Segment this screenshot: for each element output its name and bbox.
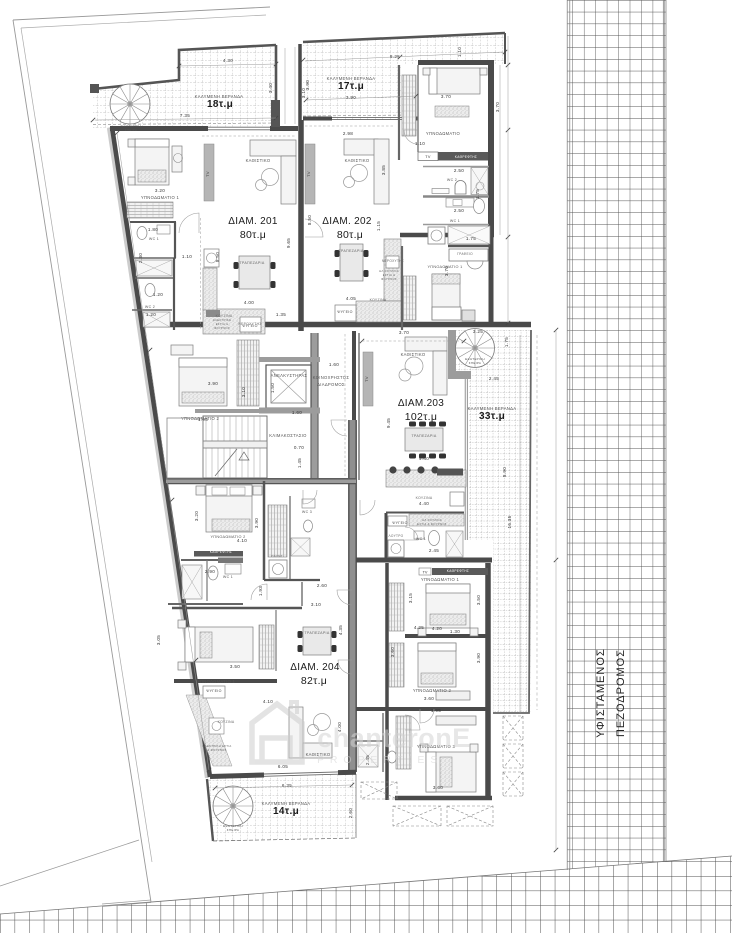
- svg-text:82τ.μ: 82τ.μ: [301, 675, 327, 687]
- svg-text:9.65: 9.65: [286, 238, 291, 248]
- svg-text:ΣΠΕΙΡΑ: ΣΠΕΙΡΑ: [125, 128, 137, 132]
- svg-text:4.25: 4.25: [414, 625, 424, 630]
- svg-text:1.30: 1.30: [450, 629, 460, 634]
- svg-text:4.30: 4.30: [223, 58, 233, 63]
- svg-text:3.20: 3.20: [155, 188, 165, 193]
- svg-text:3.90: 3.90: [208, 381, 218, 386]
- svg-text:ΥΠΝΟΔΩΜΑΤΙΟ: ΥΠΝΟΔΩΜΑΤΙΟ: [426, 131, 461, 136]
- svg-text:1.93: 1.93: [258, 586, 263, 596]
- svg-text:6.35: 6.35: [282, 783, 292, 788]
- svg-text:ΚΟΙΝΟΧΡΗΣΤΟΣ: ΚΟΙΝΟΧΡΗΣΤΟΣ: [313, 375, 350, 380]
- svg-text:ΚΑΘΙΣΤΙΚΟ: ΚΑΘΙΣΤΙΚΟ: [401, 352, 426, 357]
- svg-text:ΚΑΘΡΕΦΤΗΣ: ΚΑΘΡΕΦΤΗΣ: [447, 569, 469, 573]
- svg-text:ΚΟΥΖΙΝΑ: ΚΟΥΖΙΝΑ: [370, 298, 387, 302]
- svg-text:ΣΠΕΙΡΑ: ΣΠΕΙΡΑ: [469, 361, 481, 365]
- svg-text:1.10: 1.10: [457, 47, 462, 57]
- svg-text:1.35: 1.35: [276, 312, 286, 317]
- svg-text:ΨΥΓΕΙΟ: ΨΥΓΕΙΟ: [337, 310, 352, 314]
- svg-text:80τ.μ: 80τ.μ: [337, 229, 363, 241]
- svg-text:3.20: 3.20: [194, 511, 199, 521]
- svg-text:ΤΡΑΠΕΖΑΡΙΑ: ΤΡΑΠΕΖΑΡΙΑ: [304, 631, 329, 635]
- svg-text:1.60: 1.60: [292, 410, 302, 415]
- svg-text:ΠΕΖΟΔΡΟΜΟΣ: ΠΕΖΟΔΡΟΜΟΣ: [615, 649, 627, 737]
- svg-text:WC 3: WC 3: [302, 510, 312, 514]
- svg-text:1.10: 1.10: [182, 254, 192, 259]
- svg-text:& ΦΟΥΡΝΟΣ: & ΦΟΥΡΝΟΣ: [207, 748, 226, 752]
- svg-text:3.15: 3.15: [408, 593, 413, 603]
- svg-text:ΨΥΓΕΙΟ: ΨΥΓΕΙΟ: [206, 689, 221, 693]
- svg-text:TV: TV: [423, 571, 428, 575]
- svg-text:ΚΛΙΜΑΚΟΣΤΑΣΙΟ: ΚΛΙΜΑΚΟΣΤΑΣΙΟ: [269, 433, 307, 438]
- svg-text:3.70: 3.70: [441, 94, 451, 99]
- svg-text:3.10: 3.10: [241, 387, 246, 397]
- svg-text:2.30: 2.30: [138, 253, 143, 263]
- svg-text:4.35: 4.35: [338, 625, 343, 635]
- svg-text:3.70: 3.70: [495, 102, 500, 112]
- svg-text:3.70: 3.70: [399, 330, 409, 335]
- svg-text:TV: TV: [306, 171, 311, 177]
- svg-text:ΛΟΥΤΡΟ: ΛΟΥΤΡΟ: [389, 534, 404, 538]
- svg-text:33τ.μ: 33τ.μ: [479, 411, 505, 422]
- svg-text:1.95: 1.95: [431, 708, 441, 713]
- svg-text:2.98: 2.98: [343, 131, 353, 136]
- svg-text:80τ.μ: 80τ.μ: [240, 229, 266, 241]
- svg-text:17τ.μ: 17τ.μ: [338, 81, 364, 92]
- svg-text:ΤΡΑΠΕΖΑΡΙΑ: ΤΡΑΠΕΖΑΡΙΑ: [239, 261, 264, 265]
- svg-text:8.50: 8.50: [307, 215, 312, 225]
- svg-text:3.25: 3.25: [473, 329, 483, 334]
- svg-text:102τ.μ: 102τ.μ: [405, 411, 437, 423]
- svg-text:ΤΡΑΠΕΖΑΡΙΑ: ΤΡΑΠΕΖΑΡΙΑ: [338, 249, 363, 253]
- svg-text:3.60: 3.60: [390, 647, 395, 657]
- svg-text:3.90: 3.90: [254, 518, 259, 528]
- svg-text:3.10: 3.10: [311, 602, 321, 607]
- svg-text:2.60: 2.60: [317, 583, 327, 588]
- svg-text:2.90: 2.90: [205, 569, 215, 574]
- svg-text:8.50: 8.50: [215, 252, 220, 262]
- svg-text:ΨΥΓΕΙΟ: ΨΥΓΕΙΟ: [242, 324, 257, 328]
- svg-text:8.90: 8.90: [502, 467, 507, 477]
- svg-text:1.80: 1.80: [148, 227, 158, 232]
- svg-text:4.10: 4.10: [263, 699, 273, 704]
- svg-text:2.50: 2.50: [454, 208, 464, 213]
- svg-text:ΔΙΑΜ. 204: ΔΙΑΜ. 204: [290, 662, 340, 673]
- svg-text:3.40: 3.40: [268, 83, 273, 93]
- svg-text:1.20: 1.20: [146, 312, 156, 317]
- svg-text:3.90: 3.90: [476, 653, 481, 663]
- svg-text:7.35: 7.35: [180, 113, 190, 118]
- svg-text:4.05: 4.05: [346, 296, 356, 301]
- svg-text:ΥΠΝΟΔΩΜΑΤΙΟ 1: ΥΠΝΟΔΩΜΑΤΙΟ 1: [421, 577, 460, 582]
- svg-text:ΚΑΘΙΣΤΙΚΟ: ΚΑΘΙΣΤΙΚΟ: [246, 158, 271, 163]
- svg-text:9.45: 9.45: [386, 418, 391, 428]
- svg-text:2.50: 2.50: [454, 168, 464, 173]
- svg-text:1.50: 1.50: [270, 383, 275, 393]
- svg-text:1.45: 1.45: [297, 458, 302, 468]
- svg-text:ΔΙΑΜ.203: ΔΙΑΜ.203: [398, 398, 444, 409]
- svg-text:ΦΟΥΡΝΟΣ: ΦΟΥΡΝΟΣ: [214, 326, 230, 330]
- svg-text:14τ.μ: 14τ.μ: [273, 806, 299, 817]
- svg-text:ΚΟΥΖΙΝΑ: ΚΟΥΖΙΝΑ: [416, 496, 433, 500]
- svg-text:ΚΑΛΥΜΕΝΗ ΒΕΡΑΝΔΑ: ΚΑΛΥΜΕΝΗ ΒΕΡΑΝΔΑ: [195, 94, 244, 99]
- svg-text:ΔΙΑΜ. 202: ΔΙΑΜ. 202: [322, 216, 372, 227]
- svg-text:16.35: 16.35: [507, 515, 512, 528]
- svg-text:ΑΝΕΛΚΥΣΤΗΡΑΣ: ΑΝΕΛΚΥΣΤΗΡΑΣ: [271, 373, 308, 378]
- svg-text:WC 1: WC 1: [450, 219, 460, 223]
- svg-text:ΓΡΑΦΕΙΟ: ΓΡΑΦΕΙΟ: [457, 252, 473, 256]
- svg-text:WC 2: WC 2: [145, 305, 155, 309]
- svg-text:4.10: 4.10: [237, 538, 247, 543]
- svg-text:3.50: 3.50: [230, 664, 240, 669]
- svg-text:TV: TV: [205, 171, 210, 177]
- svg-text:0.70: 0.70: [294, 445, 304, 450]
- svg-text:ΚΑΛΥΜΕΝΗ ΒΕΡΑΝΔΑ: ΚΑΛΥΜΕΝΗ ΒΕΡΑΝΔΑ: [262, 801, 311, 806]
- svg-text:ΠΛΥΝΤ: ΠΛΥΝΤ: [271, 554, 282, 558]
- svg-text:1.75: 1.75: [475, 189, 480, 199]
- svg-text:3.60: 3.60: [433, 785, 443, 790]
- svg-text:3.90: 3.90: [346, 95, 356, 100]
- svg-text:1.10: 1.10: [415, 141, 425, 146]
- svg-text:ΥΠΝΟΔΩΜΑΤΙΟ 1: ΥΠΝΟΔΩΜΑΤΙΟ 1: [197, 679, 236, 684]
- svg-text:ΚΑΛΥΜΕΝΗ ΒΕΡΑΝΔΑ: ΚΑΛΥΜΕΝΗ ΒΕΡΑΝΔΑ: [468, 406, 517, 411]
- svg-text:1.75: 1.75: [466, 236, 476, 241]
- svg-text:ΚΑΘΡΕΦΤΗΣ: ΚΑΘΡΕΦΤΗΣ: [210, 550, 232, 554]
- svg-text:WC 1: WC 1: [416, 537, 426, 541]
- svg-text:ΝΕΡΟΧΥΤΗΣ: ΝΕΡΟΧΥΤΗΣ: [382, 259, 404, 263]
- svg-text:ΚΑΘΡΕΦΤΗΣ: ΚΑΘΡΕΦΤΗΣ: [455, 155, 477, 159]
- svg-text:3.60: 3.60: [424, 696, 434, 701]
- svg-text:1.60: 1.60: [329, 362, 339, 367]
- svg-text:4.40: 4.40: [419, 501, 429, 506]
- svg-text:chanteronE: chanteronE: [317, 723, 471, 753]
- svg-text:4.20: 4.20: [432, 626, 442, 631]
- svg-text:3.85: 3.85: [381, 165, 386, 175]
- svg-text:P R O P E R T I E S: P R O P E R T I E S: [317, 754, 439, 766]
- svg-text:ΕΣΤΙΑ & ΦΟΥΡΝΟΣ: ΕΣΤΙΑ & ΦΟΥΡΝΟΣ: [417, 522, 447, 526]
- svg-text:ΥΦΙΣΤΑΜΕΝΟΣ: ΥΦΙΣΤΑΜΕΝΟΣ: [595, 648, 607, 737]
- svg-text:1.20: 1.20: [153, 292, 163, 297]
- svg-text:2.60: 2.60: [348, 808, 353, 818]
- svg-text:ΔΙΑΔΡΟΜΟΣ: ΔΙΑΔΡΟΜΟΣ: [317, 382, 345, 387]
- svg-text:3.70: 3.70: [444, 266, 449, 276]
- svg-text:3.10: 3.10: [301, 88, 306, 98]
- svg-text:ΔΙΑΜ. 201: ΔΙΑΜ. 201: [228, 216, 278, 227]
- svg-text:WC 2: WC 2: [447, 178, 457, 182]
- svg-text:TV: TV: [364, 376, 369, 382]
- svg-text:4.40: 4.40: [419, 456, 429, 461]
- svg-text:2.45: 2.45: [489, 376, 499, 381]
- svg-text:ΚΟΥΖΙΝΑ: ΚΟΥΖΙΝΑ: [218, 720, 235, 724]
- svg-text:ΤΡΑΠΕΖΑΡΙΑ: ΤΡΑΠΕΖΑΡΙΑ: [411, 434, 436, 438]
- svg-text:3.50: 3.50: [476, 595, 481, 605]
- svg-text:WC 1: WC 1: [149, 237, 159, 241]
- svg-text:4.00: 4.00: [244, 300, 254, 305]
- svg-text:2.45: 2.45: [429, 548, 439, 553]
- svg-text:TV: TV: [425, 155, 431, 159]
- svg-text:3.05: 3.05: [156, 635, 161, 645]
- svg-text:ΚΑΛΥΜΕΝΗ ΒΕΡΑΝΔΑ: ΚΑΛΥΜΕΝΗ ΒΕΡΑΝΔΑ: [327, 76, 376, 81]
- svg-text:WC 1: WC 1: [223, 575, 233, 579]
- svg-text:ΣΠΕΙΡΑ: ΣΠΕΙΡΑ: [227, 828, 239, 832]
- svg-text:ΥΠΝΟΔΩΜΑΤΙΟ 2: ΥΠΝΟΔΩΜΑΤΙΟ 2: [413, 688, 452, 693]
- svg-text:ΥΠΝΟΔΩΜΑΤΙΟ 1: ΥΠΝΟΔΩΜΑΤΙΟ 1: [141, 195, 180, 200]
- svg-text:18τ.μ: 18τ.μ: [207, 99, 233, 110]
- svg-text:ΚΑΘΙΣΤΙΚΟ: ΚΑΘΙΣΤΙΚΟ: [345, 158, 370, 163]
- svg-text:ΨΥΓΕΙΟ: ΨΥΓΕΙΟ: [392, 521, 407, 525]
- svg-text:1.15: 1.15: [376, 221, 381, 231]
- svg-text:1.75: 1.75: [504, 337, 509, 347]
- svg-text:ΦΟΥΡΝΟΣ: ΦΟΥΡΝΟΣ: [381, 277, 397, 281]
